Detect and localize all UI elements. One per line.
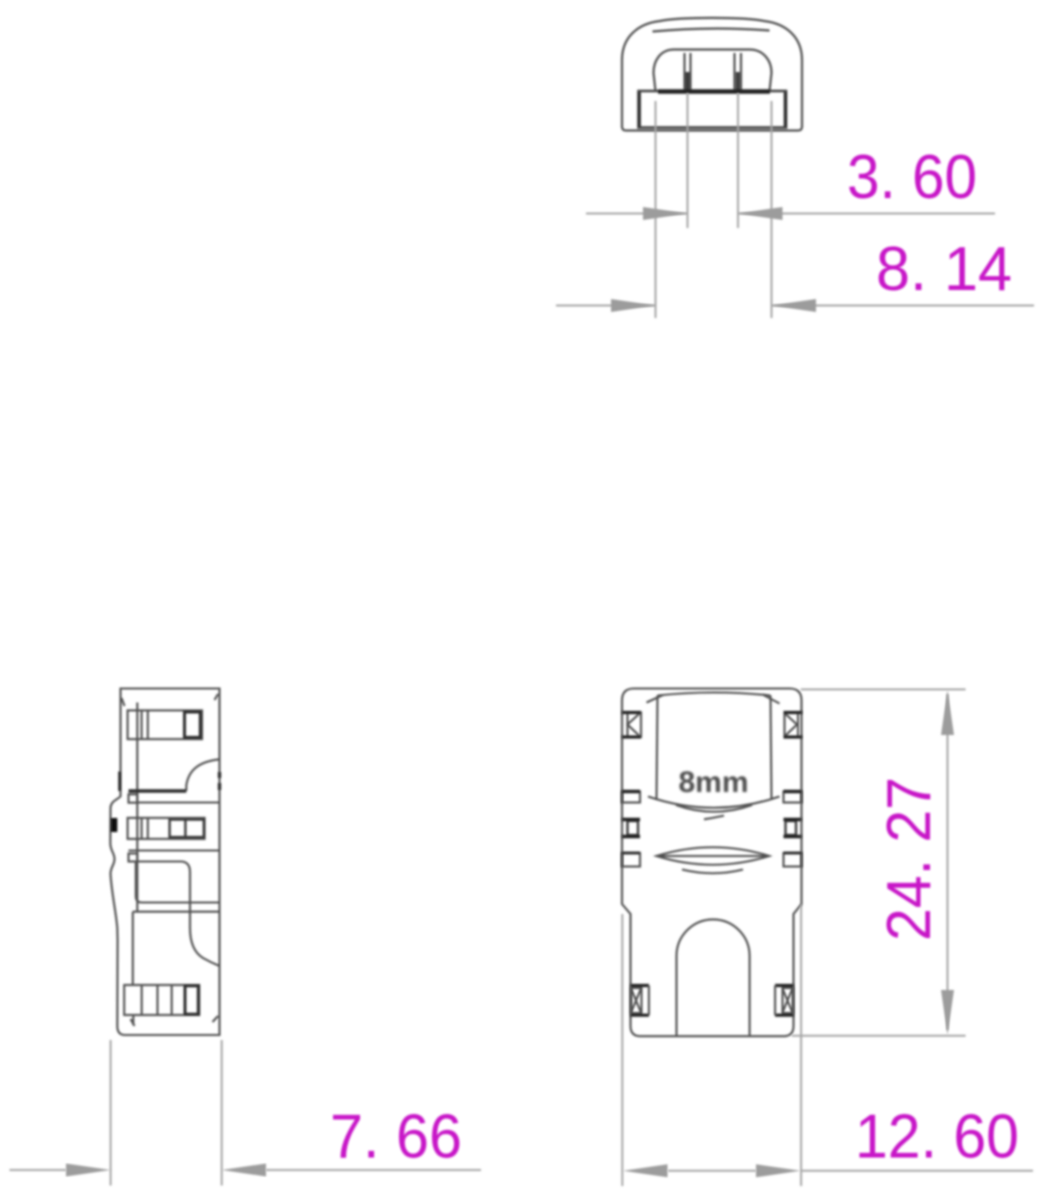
svg-text:7. 66: 7. 66 bbox=[330, 1103, 462, 1172]
svg-text:24. 27: 24. 27 bbox=[875, 777, 944, 941]
svg-text:8. 14: 8. 14 bbox=[876, 235, 1012, 304]
svg-text:12. 60: 12. 60 bbox=[855, 1103, 1019, 1172]
svg-text:3. 60: 3. 60 bbox=[847, 143, 977, 212]
svg-text:8mm: 8mm bbox=[678, 766, 748, 799]
